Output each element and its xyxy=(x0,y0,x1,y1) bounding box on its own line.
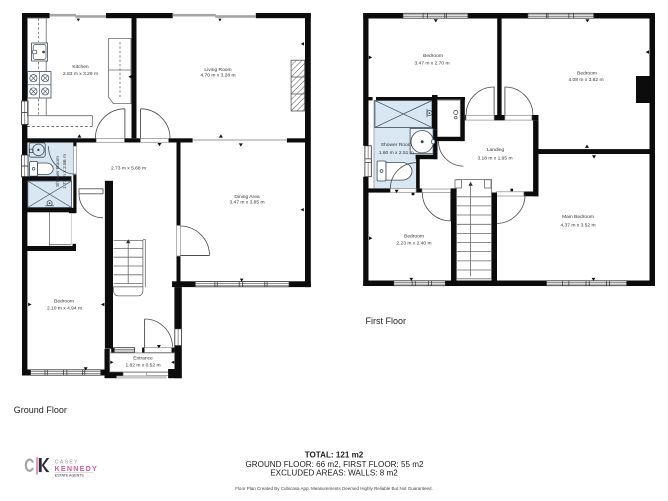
svg-text:2.10 m x 4.94 m: 2.10 m x 4.94 m xyxy=(47,306,82,312)
svg-text:Bedroom: Bedroom xyxy=(54,299,74,305)
svg-text:1.82 m x 0.52 m: 1.82 m x 0.52 m xyxy=(125,363,160,369)
svg-text:4.70 m x 3.28 m: 4.70 m x 3.28 m xyxy=(200,72,235,78)
svg-text:2.23 m x 2.40 m: 2.23 m x 2.40 m xyxy=(396,241,431,247)
svg-text:1.60 m x 2.51 m: 1.60 m x 2.51 m xyxy=(379,150,414,156)
svg-text:Shower Room: Shower Room xyxy=(381,142,412,148)
svg-text:4.08 m x 3.62 m: 4.08 m x 3.62 m xyxy=(568,77,603,83)
svg-text:Bedroom: Bedroom xyxy=(404,233,424,239)
svg-text:Entrance: Entrance xyxy=(133,355,153,361)
svg-text:2.73 m x 5.68 m: 2.73 m x 5.68 m xyxy=(111,165,146,171)
svg-text:Bedroom: Bedroom xyxy=(423,53,443,59)
svg-text:First Floor: First Floor xyxy=(366,316,407,326)
svg-text:Kitchen: Kitchen xyxy=(72,64,89,70)
svg-text:Main Bedroom: Main Bedroom xyxy=(562,214,594,220)
svg-text:Bedroom: Bedroom xyxy=(577,71,597,77)
svg-text:TOTAL: 121 m2: TOTAL: 121 m2 xyxy=(305,451,364,460)
svg-text:Living Room: Living Room xyxy=(204,67,231,73)
svg-text:1.71 m x 2.86 m: 1.71 m x 2.86 m xyxy=(62,154,68,189)
svg-text:EXCLUDED AREAS: WALLS: 8 m2: EXCLUDED AREAS: WALLS: 8 m2 xyxy=(270,469,398,478)
svg-text:Dining Area: Dining Area xyxy=(234,194,260,200)
svg-text:GROUND FLOOR: 66 m2, FIRST FLO: GROUND FLOOR: 66 m2, FIRST FLOOR: 55 m2 xyxy=(246,460,424,469)
svg-text:Floor Plan Created By Cubicasa: Floor Plan Created By Cubicasa App. Meas… xyxy=(235,486,433,491)
svg-text:2.83 m x 3.29 m: 2.83 m x 3.29 m xyxy=(63,71,98,77)
svg-text:Ground Floor: Ground Floor xyxy=(14,405,67,415)
svg-text:3.18 m x 1.95 m: 3.18 m x 1.95 m xyxy=(477,155,512,161)
svg-text:KENNEDY: KENNEDY xyxy=(55,464,99,473)
svg-text:3.47 m x 2.70 m: 3.47 m x 2.70 m xyxy=(414,61,449,67)
svg-text:3.47 m x 3.85 m: 3.47 m x 3.85 m xyxy=(229,199,264,205)
svg-text:4.37 m x 3.52 m: 4.37 m x 3.52 m xyxy=(560,222,595,228)
svg-text:Shower Room: Shower Room xyxy=(55,156,61,187)
svg-text:ESTATE AGENTS: ESTATE AGENTS xyxy=(55,473,85,477)
svg-text:Landing: Landing xyxy=(487,147,505,153)
